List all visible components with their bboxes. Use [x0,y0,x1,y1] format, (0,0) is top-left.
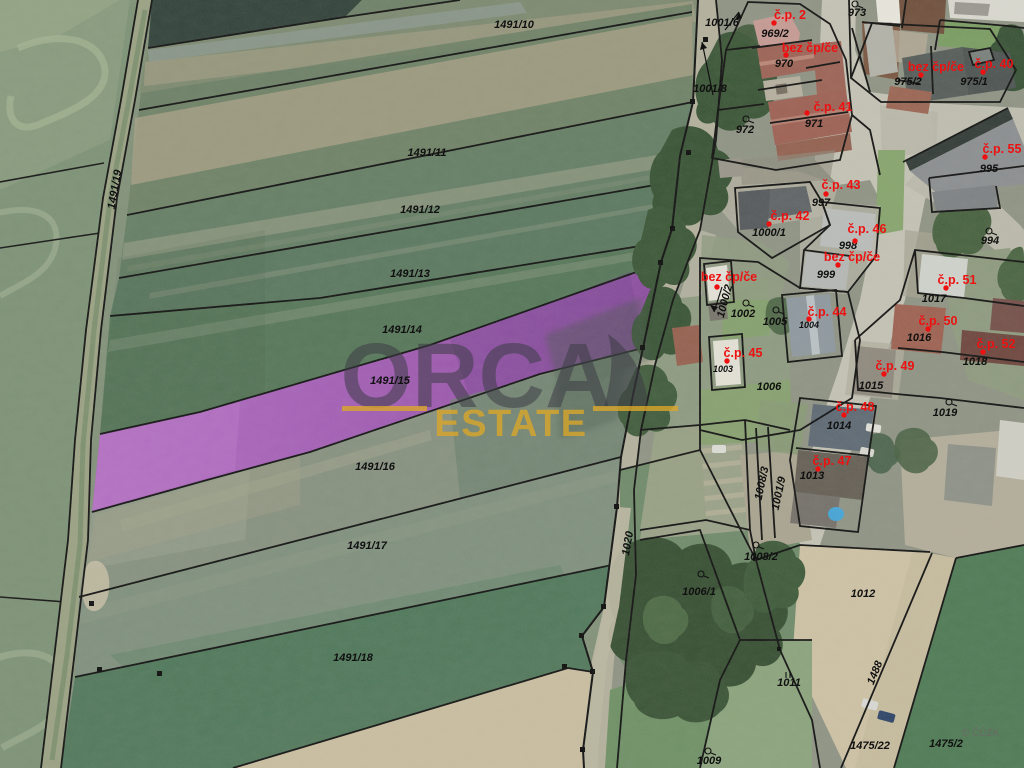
svg-text:bez čp/če: bez čp/če [824,250,880,264]
svg-text:1491/11: 1491/11 [408,147,447,159]
svg-text:1491/12: 1491/12 [400,204,440,216]
svg-text:č.p. 43: č.p. 43 [822,178,861,192]
svg-text:1005: 1005 [763,316,788,328]
svg-text:č.p. 49: č.p. 49 [876,359,915,373]
svg-text:1002: 1002 [731,308,755,320]
svg-text:1014: 1014 [827,420,851,432]
svg-text:1013: 1013 [800,470,824,482]
svg-text:č.p. 48: č.p. 48 [836,400,875,414]
svg-text:969/2: 969/2 [761,28,789,40]
svg-text:973: 973 [848,7,866,19]
svg-text:č.p. 42: č.p. 42 [771,209,810,223]
svg-text:999: 999 [817,269,836,281]
svg-text:1008/2: 1008/2 [744,551,778,563]
svg-text:1000/1: 1000/1 [752,227,786,239]
svg-text:č.p. 52: č.p. 52 [977,337,1016,351]
svg-text:1016: 1016 [907,332,932,344]
svg-text:bez čp/če: bez čp/če [908,60,964,74]
svg-text:1003: 1003 [713,364,733,374]
svg-text:1491/18: 1491/18 [333,652,374,664]
svg-text:994: 994 [981,235,999,247]
svg-text:ESTATE: ESTATE [434,403,587,445]
svg-text:č.p. 40: č.p. 40 [975,57,1014,71]
svg-text:975/1: 975/1 [960,76,988,88]
svg-text:1011: 1011 [777,677,801,689]
svg-text:975/2: 975/2 [894,76,922,88]
svg-text:1017: 1017 [922,293,947,305]
svg-text:č.p. 47: č.p. 47 [813,454,852,468]
svg-text:1006: 1006 [757,381,782,393]
svg-text:č.p. 2: č.p. 2 [774,8,806,22]
svg-text:© ČÚZK: © ČÚZK [962,726,1000,739]
svg-text:č.p. 46: č.p. 46 [848,222,887,236]
svg-text:1491/17: 1491/17 [347,540,388,552]
svg-text:bez čp/če: bez čp/če [701,270,757,284]
svg-text:972: 972 [736,124,754,136]
svg-text:1015: 1015 [859,380,884,392]
svg-text:bez čp/če: bez čp/če [782,41,838,55]
svg-text:1018: 1018 [963,356,988,368]
svg-text:č.p. 44: č.p. 44 [808,305,847,319]
svg-text:1491/13: 1491/13 [390,268,430,280]
svg-text:1475/2: 1475/2 [929,738,963,750]
svg-text:1012: 1012 [851,588,875,600]
svg-text:970: 970 [775,58,794,70]
svg-text:1019: 1019 [933,407,958,419]
svg-text:995: 995 [980,163,999,175]
svg-text:1475/22: 1475/22 [850,740,890,752]
svg-text:1001/6: 1001/6 [705,17,740,29]
svg-text:1009: 1009 [697,755,722,767]
svg-text:č.p. 51: č.p. 51 [938,273,977,287]
svg-text:č.p. 41: č.p. 41 [814,100,853,114]
svg-text:1491/16: 1491/16 [355,461,396,473]
svg-text:1491/10: 1491/10 [494,19,535,31]
svg-text:1006/1: 1006/1 [682,586,716,598]
svg-text:1491/15: 1491/15 [370,375,411,387]
svg-text:č.p. 45: č.p. 45 [724,346,763,360]
svg-text:č.p. 50: č.p. 50 [919,314,958,328]
svg-text:1491/14: 1491/14 [382,324,422,336]
svg-text:971: 971 [805,118,823,130]
svg-text:997: 997 [812,197,831,209]
svg-text:č.p. 55: č.p. 55 [983,142,1022,156]
